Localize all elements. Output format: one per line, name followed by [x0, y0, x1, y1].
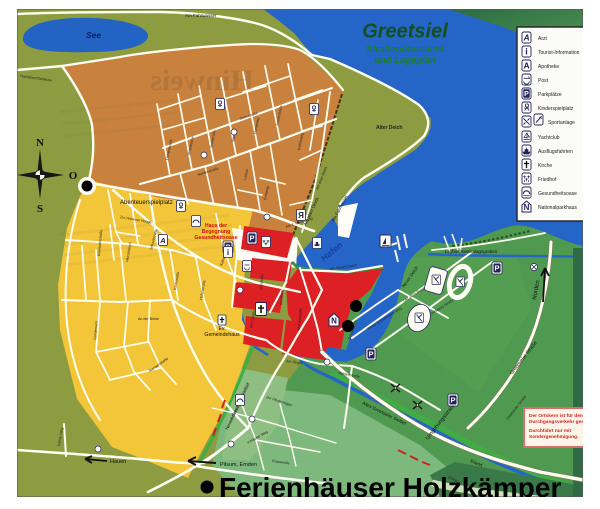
svg-text:Sportanlage: Sportanlage	[548, 120, 575, 126]
svg-text:See: See	[86, 30, 101, 40]
svg-text:A: A	[522, 33, 529, 43]
svg-text:P: P	[368, 350, 373, 359]
svg-text:P: P	[249, 234, 254, 243]
svg-text:Post: Post	[538, 78, 549, 84]
svg-text:Friedhof: Friedhof	[538, 177, 557, 183]
svg-text:Sondergenehmigung.: Sondergenehmigung.	[529, 434, 578, 440]
svg-text:P: P	[494, 264, 499, 273]
svg-text:Am Fahrwasser: Am Fahrwasser	[185, 13, 217, 18]
svg-text:A: A	[159, 236, 165, 245]
svg-text:Straßenübersicht: Straßenübersicht	[366, 44, 445, 55]
svg-text:Apotheke: Apotheke	[538, 64, 559, 70]
svg-text:Я: Я	[298, 211, 304, 220]
svg-text:Arzt: Arzt	[538, 36, 548, 42]
svg-text:Der Ortskern ist für den: Der Ortskern ist für den	[529, 413, 583, 419]
svg-text:Yachtclub: Yachtclub	[538, 135, 560, 141]
svg-text:Tourist-Information: Tourist-Information	[538, 50, 580, 56]
svg-text:N: N	[331, 316, 337, 325]
svg-text:Ausflugsfahrten: Ausflugsfahrten	[538, 149, 573, 155]
svg-text:Pilsum, Emden: Pilsum, Emden	[220, 462, 257, 468]
svg-text:Kinderspielplatz: Kinderspielplatz	[538, 106, 574, 112]
svg-text:i: i	[227, 248, 229, 257]
svg-text:Hauen: Hauen	[110, 459, 126, 465]
svg-text:P: P	[524, 91, 529, 98]
svg-text:An der Börse: An der Börse	[138, 317, 159, 321]
svg-text:P: P	[450, 396, 455, 405]
svg-text:Kirche: Kirche	[538, 163, 552, 169]
svg-text:Parkplätze: Parkplätze	[538, 92, 562, 98]
svg-text:Abenteuerspielplatz: Abenteuerspielplatz	[120, 200, 173, 206]
svg-text:Leybuchtsielanlagsgraben: Leybuchtsielanlagsgraben	[445, 249, 498, 254]
svg-text:N: N	[524, 203, 530, 212]
svg-text:i: i	[525, 47, 528, 57]
svg-text:Gemeindehaus: Gemeindehaus	[204, 332, 240, 338]
svg-text:Alter Deich: Alter Deich	[376, 125, 402, 131]
svg-text:Gesundheitsoase: Gesundheitsoase	[538, 191, 577, 197]
svg-text:S: S	[37, 203, 43, 215]
svg-text:und Lageplan: und Lageplan	[374, 55, 436, 66]
svg-text:N: N	[36, 137, 44, 149]
svg-text:Durchfahrt nur mit: Durchfahrt nur mit	[529, 428, 572, 434]
svg-text:Hinweis: Hinweis	[150, 64, 253, 97]
svg-text:Nationalparkhaus: Nationalparkhaus	[538, 205, 577, 211]
svg-text:Gesundheitsoase: Gesundheitsoase	[194, 235, 237, 241]
svg-text:A: A	[523, 61, 529, 71]
svg-text:Durchgangsverkehr ges.: Durchgangsverkehr ges.	[529, 419, 585, 425]
svg-text:Greetsiel: Greetsiel	[362, 21, 448, 43]
svg-text:O: O	[69, 170, 78, 182]
